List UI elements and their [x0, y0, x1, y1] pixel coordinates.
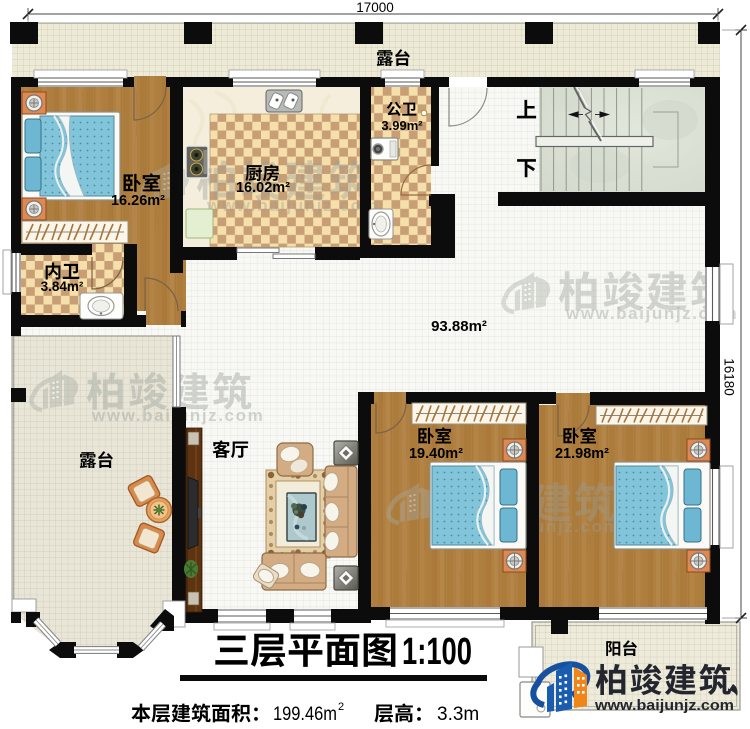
svg-text:16.26m²: 16.26m²	[111, 193, 165, 209]
svg-text:199.46m: 199.46m	[273, 704, 337, 725]
svg-text:21.98m²: 21.98m²	[555, 446, 609, 462]
svg-text:3.99m²: 3.99m²	[381, 118, 423, 133]
svg-text:19.40m²: 19.40m²	[409, 446, 463, 462]
svg-text:3.84m²: 3.84m²	[41, 279, 84, 294]
svg-text:16.02m²: 16.02m²	[236, 180, 290, 196]
svg-text:3.3m: 3.3m	[437, 704, 479, 725]
svg-text:1:100: 1:100	[402, 631, 472, 673]
svg-text:16180: 16180	[721, 358, 736, 396]
svg-text:www.baijunjz.com: www.baijunjz.com	[206, 196, 379, 215]
svg-text:93.88m²: 93.88m²	[431, 318, 487, 335]
svg-text:17000: 17000	[356, 0, 394, 15]
svg-text:2: 2	[338, 701, 344, 713]
svg-text:www.baijunjz.com: www.baijunjz.com	[594, 697, 734, 714]
